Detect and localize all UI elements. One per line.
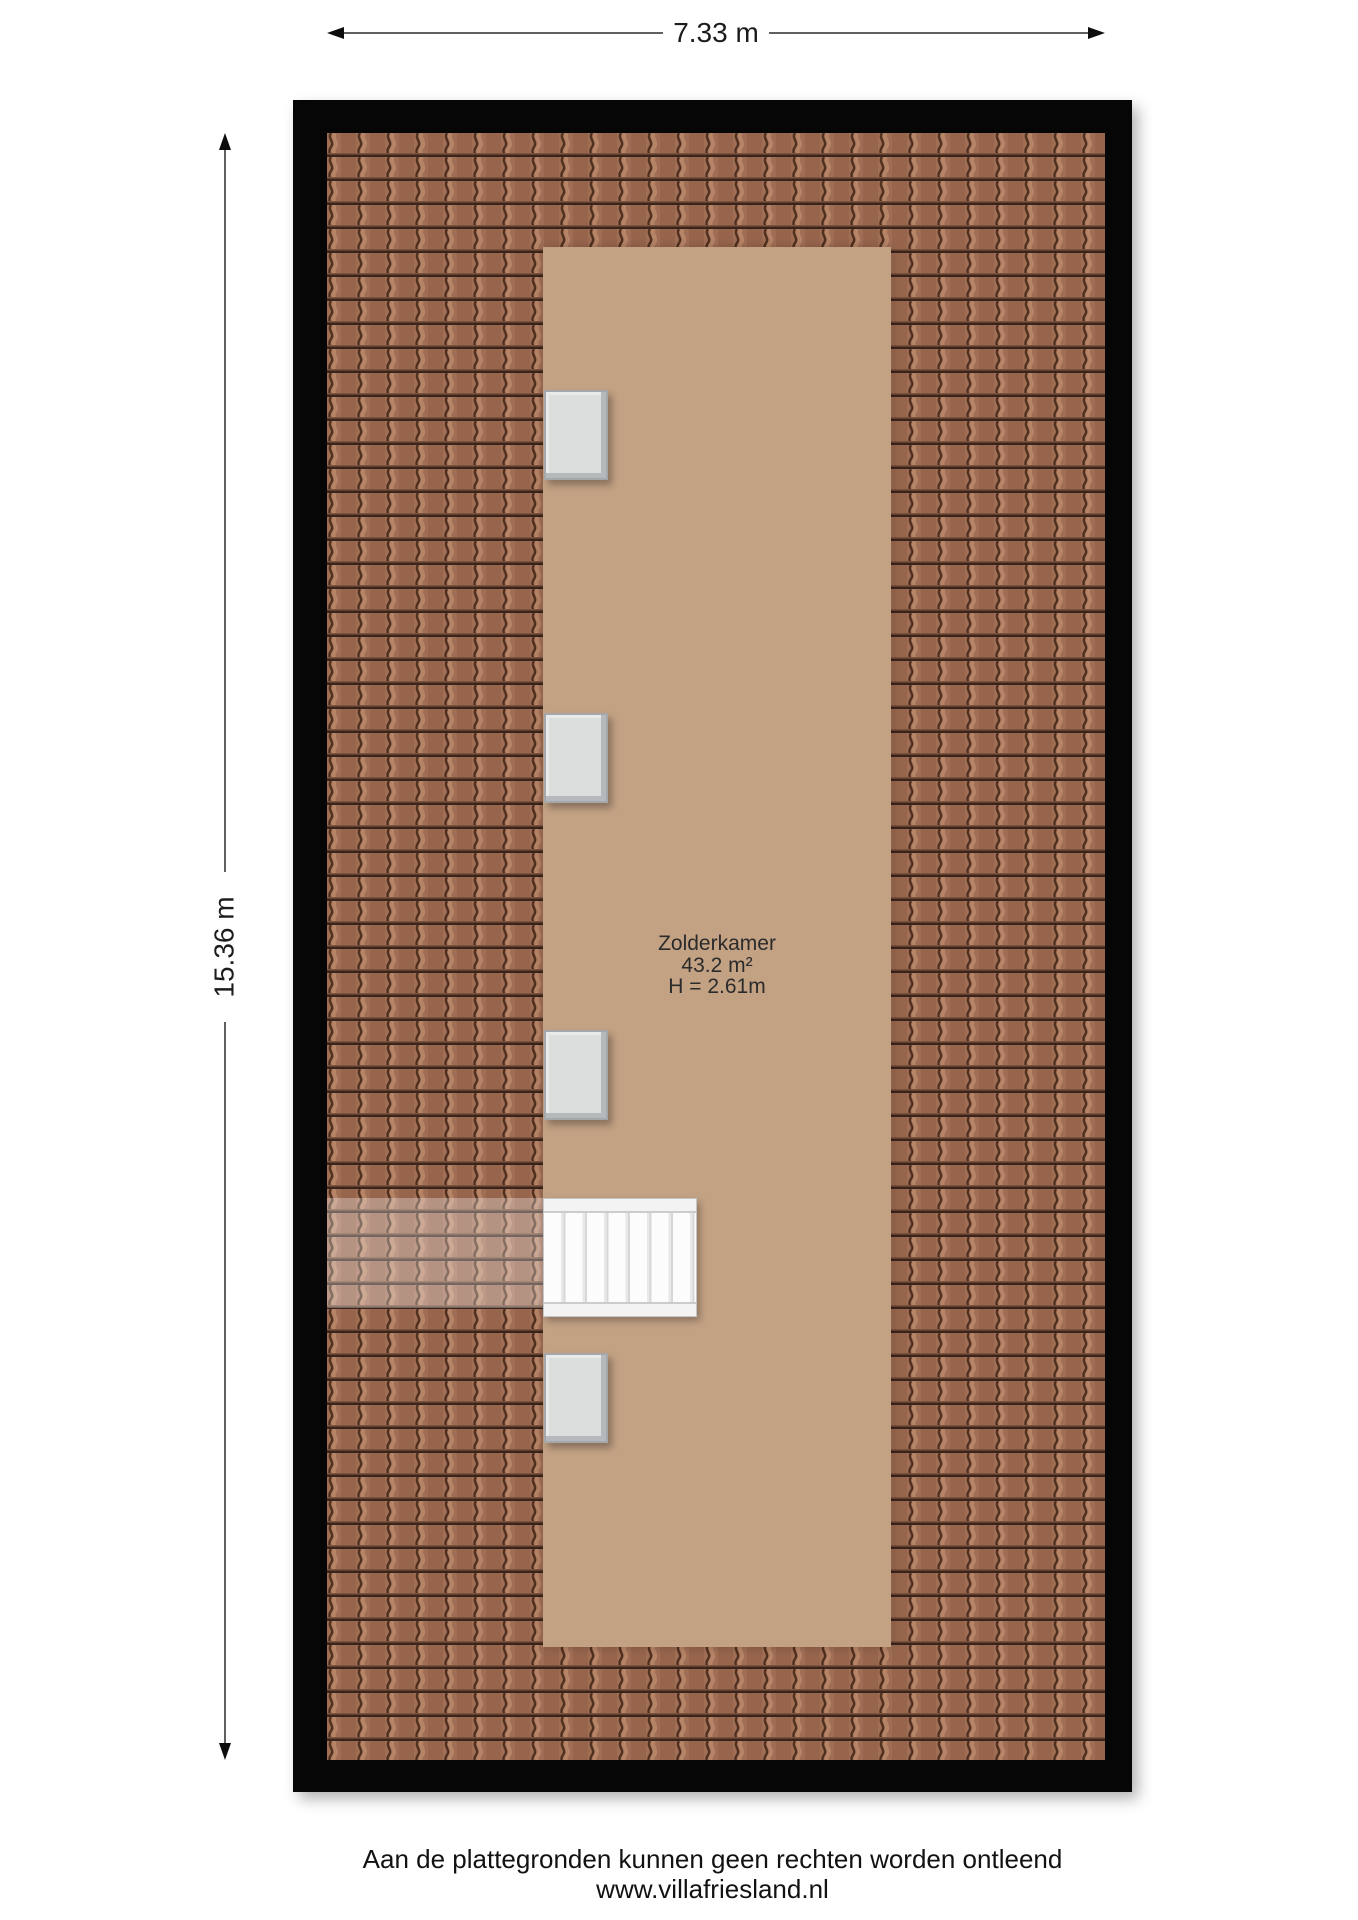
staircase — [543, 1198, 697, 1317]
staircase-bottom-rail — [544, 1302, 696, 1316]
footer: Aan de plattegronden kunnen geen rechten… — [293, 1844, 1132, 1904]
dimension-line — [224, 150, 226, 872]
dimension-line — [344, 32, 663, 34]
width-dimension-label: 7.33 m — [663, 17, 769, 49]
room-area: 43.2 m² — [543, 955, 891, 977]
dimension-line — [769, 32, 1088, 34]
room-ceiling-height: H = 2.61m — [543, 976, 891, 998]
staircase-top-rail — [544, 1199, 696, 1213]
building-outline: Zolderkamer 43.2 m² H = 2.61m — [293, 100, 1132, 1792]
height-dimension-label: 15.36 m — [209, 896, 241, 997]
floorplan-canvas: 7.33 m 15.36 m — [0, 0, 1358, 1920]
footer-website: www.villafriesland.nl — [293, 1874, 1132, 1904]
arrow-right-icon — [1088, 27, 1105, 39]
window-4 — [544, 1353, 608, 1443]
window-3 — [544, 1030, 608, 1120]
window-1 — [544, 390, 608, 480]
arrow-up-icon — [219, 133, 231, 150]
room-name: Zolderkamer — [543, 933, 891, 955]
stair-landing-overlay — [327, 1198, 543, 1308]
height-dimension-label-wrap: 15.36 m — [174, 872, 275, 1022]
footer-disclaimer: Aan de plattegronden kunnen geen rechten… — [293, 1844, 1132, 1874]
dimension-line — [224, 1022, 226, 1744]
width-dimension: 7.33 m — [327, 18, 1105, 48]
staircase-steps — [544, 1213, 696, 1304]
room-label: Zolderkamer 43.2 m² H = 2.61m — [543, 933, 891, 998]
height-dimension: 15.36 m — [204, 133, 246, 1760]
arrow-down-icon — [219, 1743, 231, 1760]
window-2 — [544, 713, 608, 803]
arrow-left-icon — [327, 27, 344, 39]
